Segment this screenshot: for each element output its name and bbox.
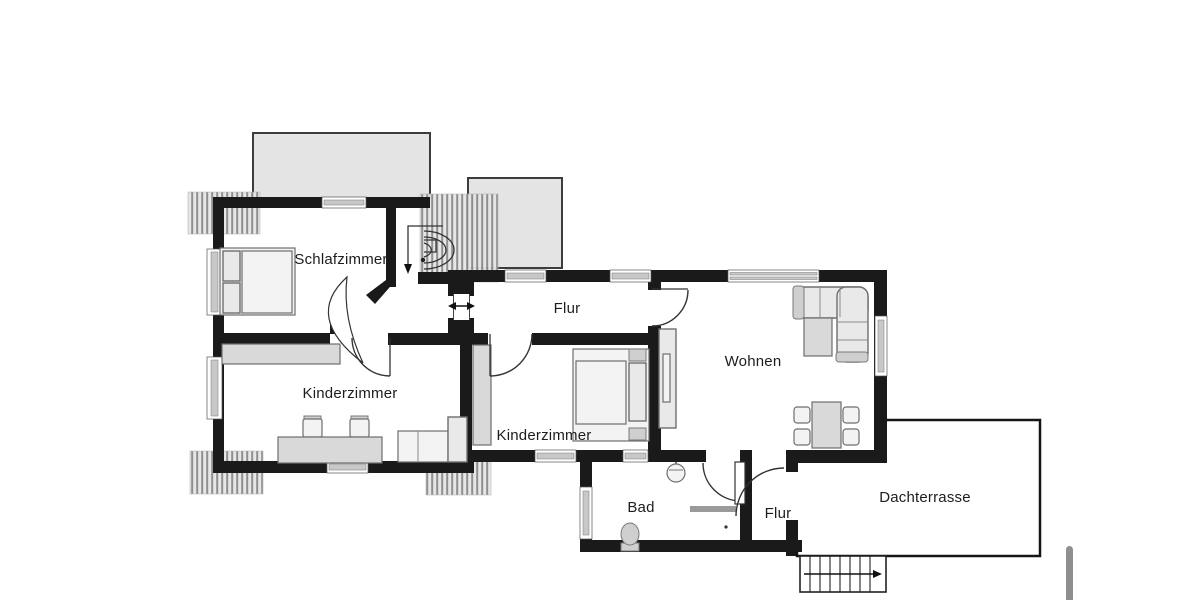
sink-icon [667, 462, 685, 482]
scrollbar-thumb[interactable] [1066, 546, 1073, 600]
dormer-top-left [253, 133, 430, 198]
window [505, 270, 546, 282]
door-kinderzimmer-left [352, 338, 390, 376]
window [623, 450, 648, 462]
room-label-bad: Bad [627, 499, 654, 516]
drain-dot [724, 525, 727, 528]
room-label-dachterrasse: Dachterrasse [879, 489, 971, 506]
floorplan-canvas: Schlafzimmer Flur Kinderzimmer Kinderzim… [0, 0, 1200, 600]
chest [398, 417, 467, 462]
room-label-wohnen: Wohnen [725, 353, 782, 370]
window [535, 450, 576, 462]
window-wide [728, 270, 819, 282]
room-label-flur-lower: Flur [765, 505, 792, 522]
window [610, 270, 651, 282]
shower-partition [690, 506, 736, 512]
room-label-kinderzimmer-center: Kinderzimmer [497, 427, 592, 444]
window [580, 487, 592, 539]
dining-set [794, 402, 859, 448]
closet [473, 345, 491, 445]
window [207, 357, 222, 419]
floorplan-drawing: Schlafzimmer Flur Kinderzimmer Kinderzim… [0, 0, 1200, 600]
passage-opening-symbol [448, 294, 475, 320]
shelf-cabinet [659, 329, 676, 428]
door-kinderzimmer-center [490, 334, 532, 376]
staircase-exterior [800, 556, 886, 592]
desk-with-chairs [278, 416, 382, 463]
coffee-table [804, 318, 832, 356]
door-bad [703, 462, 745, 504]
room-label-schlafzimmer: Schlafzimmer [294, 251, 387, 268]
toilet-icon [621, 523, 639, 551]
window [322, 197, 366, 208]
window [875, 316, 887, 376]
diagonal-wall [366, 280, 396, 304]
wardrobe [222, 344, 340, 364]
double-bed [220, 248, 295, 315]
door-wohnen [652, 289, 688, 326]
room-label-flur-upper: Flur [554, 300, 581, 317]
room-label-kinderzimmer-left: Kinderzimmer [303, 385, 398, 402]
